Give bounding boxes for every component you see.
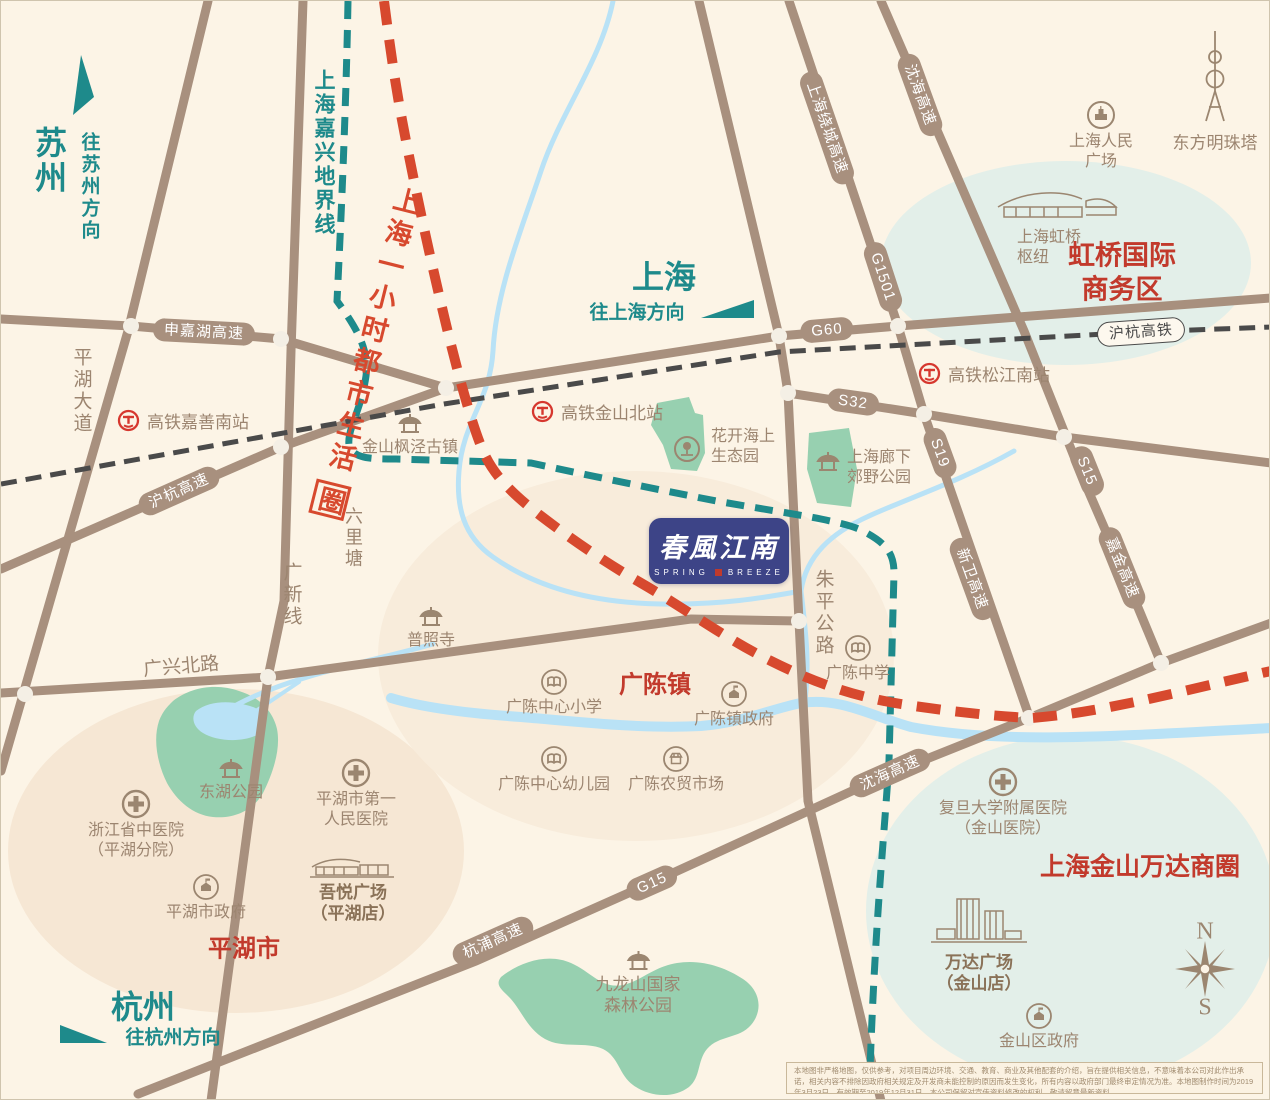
poi-langxia: 上海廊下 郊野公园 (847, 448, 911, 488)
station-label: 高铁松江南站 (948, 361, 1050, 386)
poi-label: 普照寺 (407, 631, 455, 651)
roadname-pinghu-ave: 平湖大道 (68, 347, 95, 435)
zone-hongqiao-cbd: 虹桥国际 商务区 (1068, 239, 1176, 307)
towers-building-art (927, 895, 1031, 951)
government-icon (720, 680, 748, 708)
school-book-icon (540, 668, 568, 696)
poi-guangchen-kindergarten: 广陈中心幼儿园 (498, 745, 610, 795)
poi-donghu: 东湖公园 (199, 757, 263, 803)
poi-label: 浙江省中医院 (88, 821, 184, 841)
poi-pinghu-gov: 平湖市政府 (166, 873, 246, 923)
poi-label2: （金山店） (937, 974, 1022, 995)
government-icon (192, 873, 220, 901)
poi-pearl-label: 东方明珠塔 (1173, 129, 1258, 154)
poi-label2: 森林公园 (604, 996, 672, 1017)
roadname-liulitang: 六里塘 (340, 507, 366, 570)
shanghai-arrow-icon (699, 297, 757, 321)
direction-shanghai: 往上海方向 (589, 298, 684, 325)
poi-wuyue-plaza: 吾悦广场 （平湖店） (308, 853, 398, 924)
poi-jiulongshan: 九龙山国家 森林公园 (596, 949, 681, 1016)
location-map: 苏州 往苏州方向 上海 往上海方向 杭州 往杭州方向 上海嘉兴地界线 上海一小时… (0, 0, 1270, 1100)
market-icon (662, 745, 690, 773)
direction-suzhou: 往苏州方向 (76, 132, 103, 242)
poi-label: 广陈中心小学 (506, 698, 602, 718)
station-jinshan-north: 高铁金山北站 (531, 399, 663, 424)
poi-label: 九龙山国家 (596, 975, 681, 996)
poi-label: 吾悦广场 (319, 883, 387, 904)
roadname-guangxin: 广新线 (278, 562, 305, 628)
logo-english-name: SPRING BREEZE (654, 568, 784, 577)
station-jiashan-south: 高铁嘉善南站 (117, 408, 249, 433)
pavilion-icon (624, 949, 652, 973)
poi-label: 广陈中学 (826, 664, 890, 684)
poi-pinghu-first-hospital: 平湖市第一 人民医院 (316, 758, 396, 829)
pavilion-icon (417, 605, 445, 629)
poi-label: 上海人民 (1069, 132, 1133, 152)
poi-jinshan-gov: 金山区政府 (999, 1002, 1079, 1052)
suzhou-arrow-icon (67, 53, 99, 117)
hospital-cross-icon (988, 767, 1018, 797)
zone-wanda-circle: 上海金山万达商圈 (1040, 847, 1240, 883)
city-shanghai: 上海 (632, 252, 696, 298)
poi-huakai: 花开海上 生态园 (711, 427, 775, 467)
logo-en-word1: SPRING (654, 568, 709, 577)
poi-fengjing: 金山枫泾古镇 (362, 412, 458, 458)
hangzhou-arrow-icon (57, 1022, 109, 1046)
poi-label: 平湖市第一 (316, 790, 396, 810)
station-label: 高铁嘉善南站 (147, 408, 249, 433)
mall-building-art (308, 853, 398, 881)
zone-label: 虹桥国际 (1068, 239, 1176, 273)
poi-label: 上海廊下 (847, 448, 911, 468)
logo-red-square-icon (715, 569, 722, 576)
poi-label2: （金山医院） (955, 819, 1051, 839)
compass-south-label: S (1198, 995, 1211, 1022)
compass-rose-icon (1173, 939, 1237, 999)
zone-guangchen: 广陈镇 (619, 665, 691, 700)
poi-label: 广陈镇政府 (694, 710, 774, 730)
building-circle-icon (1086, 100, 1116, 130)
tree-park-icon (673, 435, 701, 463)
project-logo: 春風江南 SPRING BREEZE (649, 518, 789, 584)
poi-zhejiang-tcm-hospital: 浙江省中医院 （平湖分院） (88, 789, 184, 860)
poi-label: 复旦大学附属医院 (939, 799, 1067, 819)
poi-guangchen-primary-school: 广陈中心小学 (506, 668, 602, 718)
poi-label2: （平湖分院） (88, 841, 184, 861)
hospital-cross-icon (341, 758, 371, 788)
poi-wanda-plaza: 万达广场 （金山店） (927, 895, 1031, 994)
disclaimer-box: 本地图非严格地图，仅供参考，对项目周边环境、交通、教育、商业及其他配套的介绍，旨… (786, 1062, 1263, 1094)
oriental-pearl-icon (1201, 29, 1229, 127)
poi-label2: 生态园 (711, 447, 775, 467)
poi-guangchen-gov: 广陈镇政府 (694, 680, 774, 730)
pavilion-icon (814, 450, 842, 474)
railway-icon (531, 400, 554, 423)
poi-renmin-square: 上海人民 广场 (1069, 100, 1133, 171)
direction-hangzhou: 往杭州方向 (125, 1023, 220, 1050)
logo-en-word2: BREEZE (728, 568, 784, 577)
hospital-cross-icon (121, 789, 151, 819)
poi-label: 广陈农贸市场 (628, 775, 724, 795)
poi-guangchen-market: 广陈农贸市场 (628, 745, 724, 795)
pavilion-icon (217, 757, 245, 781)
poi-label: 金山枫泾古镇 (362, 438, 458, 458)
poi-label: 广陈中心幼儿园 (498, 775, 610, 795)
zone-pinghu-city: 平湖市 (208, 929, 280, 964)
zone-label2: 商务区 (1068, 273, 1176, 307)
poi-label: 平湖市政府 (166, 903, 246, 923)
poi-label2: 人民医院 (324, 810, 388, 830)
city-hangzhou: 杭州 (111, 982, 175, 1028)
railway-icon (117, 409, 140, 432)
poi-label2: （平湖店） (311, 904, 396, 925)
school-book-icon (844, 634, 872, 662)
poi-label2: 郊野公园 (847, 468, 911, 488)
poi-label: 花开海上 (711, 427, 775, 447)
poi-puzhaosi: 普照寺 (407, 605, 455, 651)
poi-label2: 广场 (1085, 152, 1117, 172)
poi-guangchen-middle-school: 广陈中学 (826, 634, 890, 684)
station-songjiang-south: 高铁松江南站 (918, 361, 1050, 386)
logo-chinese-name: 春風江南 (659, 526, 779, 565)
pavilion-icon (396, 412, 424, 436)
boundary-label: 上海嘉兴地界线 (308, 69, 338, 237)
government-icon (1025, 1002, 1053, 1030)
poi-label: 东湖公园 (199, 783, 263, 803)
poi-fudan-jinshan-hospital: 复旦大学附属医院 （金山医院） (939, 767, 1067, 838)
hongqiao-terminal-art (994, 189, 1120, 225)
poi-label: 万达广场 (945, 953, 1013, 974)
railway-icon (918, 362, 941, 385)
school-book-icon (540, 745, 568, 773)
poi-label: 金山区政府 (999, 1032, 1079, 1052)
disclaimer-text: 本地图非严格地图，仅供参考，对项目周边环境、交通、教育、商业及其他配套的介绍，旨… (794, 1066, 1253, 1094)
station-label: 高铁金山北站 (561, 399, 663, 424)
city-suzhou: 苏州 (26, 126, 72, 196)
